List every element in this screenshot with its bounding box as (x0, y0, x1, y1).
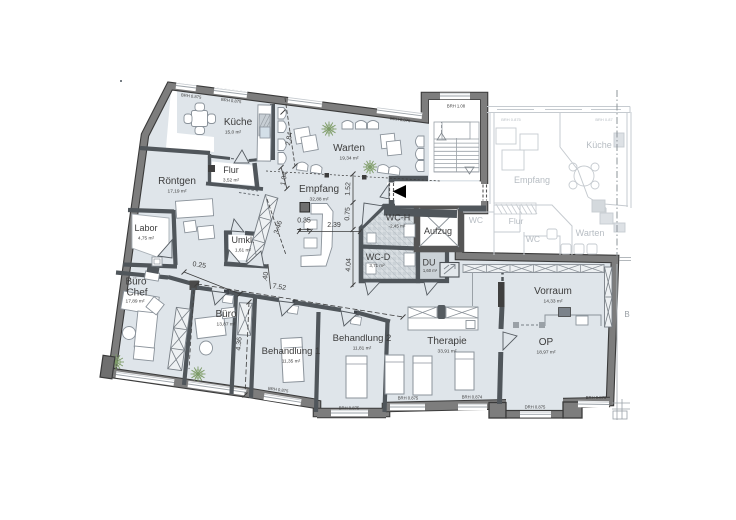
svg-text:BRH 0.875: BRH 0.875 (501, 117, 521, 122)
svg-text:Flur: Flur (509, 216, 524, 226)
svg-text:Warten: Warten (576, 228, 605, 238)
svg-text:0.75: 0.75 (344, 207, 352, 221)
svg-text:3,52 m²: 3,52 m² (223, 178, 240, 184)
svg-text:Büro: Büro (215, 309, 237, 320)
svg-text:Warten: Warten (333, 143, 365, 154)
svg-text:33,91 m²: 33,91 m² (438, 349, 457, 355)
svg-text:Aufzug: Aufzug (424, 226, 452, 236)
svg-text:WC: WC (469, 215, 483, 225)
svg-text:Küche: Küche (224, 117, 253, 128)
svg-text:DU: DU (423, 258, 436, 268)
svg-text:Umkl.: Umkl. (232, 235, 255, 245)
svg-text:-2,45 m²: -2,45 m² (389, 224, 406, 229)
svg-text:18,97 m²: 18,97 m² (537, 350, 556, 356)
svg-text:4.36: 4.36 (235, 337, 243, 351)
svg-text:BRH 0.87: BRH 0.87 (595, 117, 613, 122)
svg-text:19,34 m²: 19,34 m² (340, 156, 359, 162)
svg-text:4.04: 4.04 (345, 258, 353, 272)
svg-text:WC-D: WC-D (366, 252, 391, 262)
svg-text:32,88 m²: 32,88 m² (310, 197, 329, 203)
svg-text:Labor: Labor (134, 223, 157, 233)
svg-text:11,35 m²: 11,35 m² (282, 359, 301, 365)
svg-text:DRH 0.875: DRH 0.875 (525, 405, 546, 410)
svg-text:BRH 0.876: BRH 0.876 (586, 395, 607, 400)
svg-text:13,87 m²: 13,87 m² (217, 322, 236, 328)
svg-text:OP: OP (539, 337, 554, 348)
svg-text:BRH 0.875: BRH 0.875 (339, 406, 360, 411)
svg-text:Behandlung 1: Behandlung 1 (262, 346, 321, 357)
svg-text:Empfang: Empfang (514, 175, 550, 185)
svg-text:Vorraum: Vorraum (534, 286, 572, 297)
svg-text:BRH 1.08: BRH 1.08 (447, 104, 466, 109)
svg-text:Büro: Büro (125, 277, 147, 288)
svg-text:14,33 m²: 14,33 m² (544, 299, 563, 305)
svg-text:1,60 m²: 1,60 m² (423, 268, 438, 273)
svg-text:2.39: 2.39 (327, 222, 341, 229)
svg-text:Therapie: Therapie (427, 336, 467, 347)
svg-text:4,75 m²: 4,75 m² (138, 236, 155, 242)
svg-text:Küche: Küche (586, 140, 612, 150)
svg-text:0.35: 0.35 (297, 218, 311, 225)
svg-text:17,19 m²: 17,19 m² (168, 189, 187, 195)
svg-text:WC-H: WC-H (386, 213, 411, 223)
svg-text:3,71 m²: 3,71 m² (369, 263, 385, 268)
svg-text:1,61 m²: 1,61 m² (235, 248, 252, 254)
svg-text:BRH 0.875: BRH 0.875 (398, 396, 419, 401)
svg-text:1.52: 1.52 (345, 182, 353, 196)
svg-text:B: B (624, 310, 629, 319)
svg-text:15,0 m²: 15,0 m² (225, 130, 242, 136)
svg-text:BRH 0.874: BRH 0.874 (462, 395, 483, 400)
svg-text:Behandlung 2: Behandlung 2 (333, 333, 392, 344)
svg-text:Chef: Chef (126, 288, 147, 299)
svg-text:Röntgen: Röntgen (158, 176, 196, 187)
svg-text:11,81 m²: 11,81 m² (353, 346, 372, 352)
svg-text:WC: WC (526, 234, 540, 244)
svg-text:Flur: Flur (223, 165, 239, 175)
svg-text:17,89 m²: 17,89 m² (126, 299, 145, 305)
svg-text:Empfang: Empfang (299, 184, 339, 195)
